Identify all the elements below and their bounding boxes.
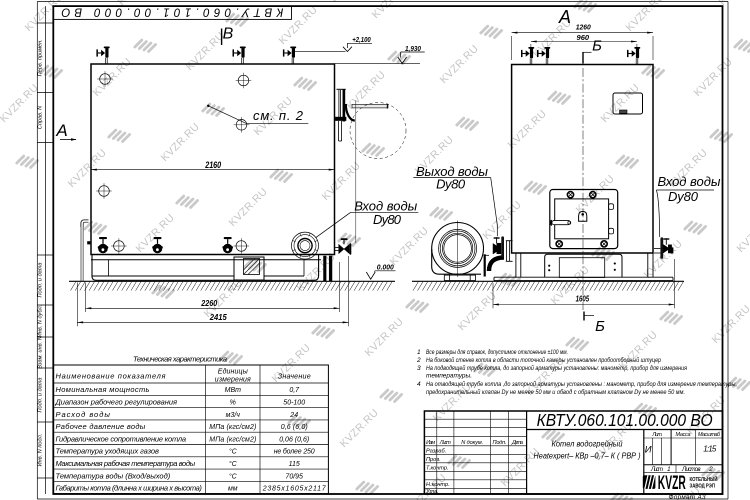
svg-text:70/95: 70/95 — [285, 473, 303, 480]
svg-text:Б: Б — [595, 318, 605, 335]
svg-text:ЗАВОД РЭП: ЗАВОД РЭП — [690, 484, 716, 490]
svg-text:Б: Б — [592, 38, 602, 55]
svg-text:0,06 (0,6): 0,06 (0,6) — [279, 436, 309, 443]
svg-text:Масса: Масса — [676, 432, 691, 438]
svg-text:температуры.: температуры. — [426, 373, 472, 380]
svg-text:предохранительный клапан Dу н: предохранительный клапан Dу не менее 50 … — [426, 388, 685, 396]
svg-text:%: % — [230, 400, 236, 407]
svg-text:Значение: Значение — [278, 371, 311, 380]
svg-text:Масштаб: Масштаб — [698, 432, 721, 438]
svg-text:Техническая характеристика: Техническая характеристика — [133, 354, 227, 363]
svg-text:1: 1 — [417, 349, 421, 356]
svg-text:0,6 (6,0): 0,6 (6,0) — [281, 424, 308, 431]
svg-text:Габариты котла (длинна х ширин: Габариты котла (длинна х ширина х высота… — [56, 484, 203, 493]
svg-text:2160: 2160 — [204, 160, 221, 170]
svg-text:Dy80: Dy80 — [668, 189, 699, 204]
svg-text:KVZR: KVZR — [658, 472, 686, 494]
svg-text:МПа (кгс/см2): МПа (кгс/см2) — [209, 436, 256, 443]
svg-text:°С: °С — [229, 472, 238, 480]
svg-text:2415: 2415 — [209, 312, 227, 322]
svg-text:Подп. и дата: Подп. и дата — [38, 262, 44, 297]
svg-text:Диапазон рабочего регулировани: Диапазон рабочего регулирования — [55, 398, 178, 407]
svg-text:Н.контр.: Н.контр. — [426, 482, 450, 488]
svg-text:Инв. N подл.: Инв. N подл. — [38, 434, 44, 467]
svg-text:Дата: Дата — [511, 440, 523, 446]
svg-text:см. п. 2: см. п. 2 — [253, 108, 304, 123]
svg-text:Температура уходящих газов: Температура уходящих газов — [56, 447, 159, 456]
svg-text:Утв.: Утв. — [425, 489, 439, 495]
svg-text:КОТЕЛЬНЫЙ: КОТЕЛЬНЫЙ — [690, 475, 718, 483]
svg-text:На отводящей трубе котла ,до з: На отводящей трубе котла ,до запорной ар… — [426, 380, 737, 388]
svg-text:Перв. примен.: Перв. примен. — [38, 39, 44, 76]
svg-text:2260: 2260 — [200, 298, 217, 308]
svg-text:мм: мм — [228, 486, 238, 493]
svg-text:Лит.: Лит. — [651, 432, 662, 438]
svg-text:На боковой стенке котла в обла: На боковой стенке котла в области топочн… — [426, 356, 661, 364]
svg-text:Наименование показателя: Наименование показателя — [56, 371, 166, 380]
svg-text:N докум.: N докум. — [461, 440, 483, 446]
svg-text:Разраб.: Разраб. — [426, 449, 446, 455]
svg-text:0,7: 0,7 — [289, 387, 300, 394]
svg-text:Dy80: Dy80 — [436, 177, 466, 192]
svg-text:В: В — [223, 26, 234, 43]
svg-text:А: А — [558, 7, 571, 27]
svg-text:Гидравлическое сопротивление к: Гидравлическое сопротивление котла — [56, 434, 187, 443]
svg-text:МПа (кгс/см2): МПа (кгс/см2) — [209, 424, 256, 431]
svg-text:Лист: Лист — [439, 440, 451, 446]
svg-text:3: 3 — [417, 365, 421, 372]
svg-text:Все размеры для справок, допус: Все размеры для справок, допустимое откл… — [426, 348, 568, 356]
svg-text:1605: 1605 — [576, 294, 590, 303]
svg-text:960: 960 — [577, 33, 590, 42]
svg-text:Подп. и дата: Подп. и дата — [38, 377, 44, 412]
svg-text:Температура воды (Вход/выход): Температура воды (Вход/выход) — [56, 471, 171, 480]
svg-text:Подп.: Подп. — [493, 440, 507, 446]
svg-text:Единицы: Единицы — [218, 368, 249, 376]
svg-text:2385х1605х2117: 2385х1605х2117 — [262, 486, 327, 493]
svg-text:Пров.: Пров. — [426, 457, 441, 463]
svg-text:°С: °С — [229, 460, 238, 468]
svg-text:2: 2 — [708, 466, 713, 473]
svg-text:Котел водогрейный: Котел водогрейный — [552, 439, 623, 449]
svg-text:115: 115 — [289, 461, 300, 468]
svg-text:Dy80: Dy80 — [373, 212, 402, 227]
svg-text:2: 2 — [416, 357, 421, 364]
svg-text:И: И — [645, 445, 652, 456]
svg-text:+2,100: +2,100 — [352, 37, 371, 44]
svg-text:А: А — [55, 121, 67, 140]
svg-text:Инв. N дубл.: Инв. N дубл. — [38, 305, 44, 337]
svg-text:Максимальная рабочая температу: Максимальная рабочая температура воды — [56, 459, 196, 468]
svg-text:Рабочее давление воды: Рабочее давление воды — [56, 422, 146, 431]
svg-text:1260: 1260 — [576, 23, 591, 32]
svg-text:м3/ч: м3/ч — [226, 412, 241, 419]
svg-text:Расход воды: Расход воды — [56, 410, 111, 419]
svg-text:Heatexpert– КВр –0,7– К ( РВР: Heatexpert– КВр –0,7– К ( РВР ) — [534, 452, 641, 461]
svg-text:1,930: 1,930 — [405, 46, 421, 53]
svg-text:Взам. инв. N: Взам. инв. N — [38, 335, 44, 369]
svg-text:измерения: измерения — [215, 376, 251, 383]
svg-text:°С: °С — [229, 448, 238, 456]
svg-text:КВТУ.060.101.00.000 ВО: КВТУ.060.101.00.000 ВО — [537, 410, 713, 430]
svg-text:Вход воды: Вход воды — [658, 174, 721, 189]
svg-text:МВт: МВт — [225, 387, 242, 394]
svg-text:Справ. N: Справ. N — [38, 105, 44, 129]
svg-text:Т.контр.: Т.контр. — [426, 466, 449, 472]
svg-text:На подводящей трубе котла, д: На подводящей трубе котла, до запорной а… — [426, 364, 687, 372]
svg-text:24: 24 — [289, 412, 298, 419]
svg-text:не более 250: не более 250 — [274, 448, 315, 456]
svg-text:4: 4 — [417, 381, 421, 388]
svg-text:1:15: 1:15 — [703, 445, 717, 454]
svg-text:Изм: Изм — [426, 440, 435, 446]
svg-text:Номинальная мощность: Номинальная мощность — [56, 385, 150, 394]
svg-text:50-100: 50-100 — [283, 400, 305, 407]
svg-text:Формат А3: Формат А3 — [669, 494, 706, 500]
